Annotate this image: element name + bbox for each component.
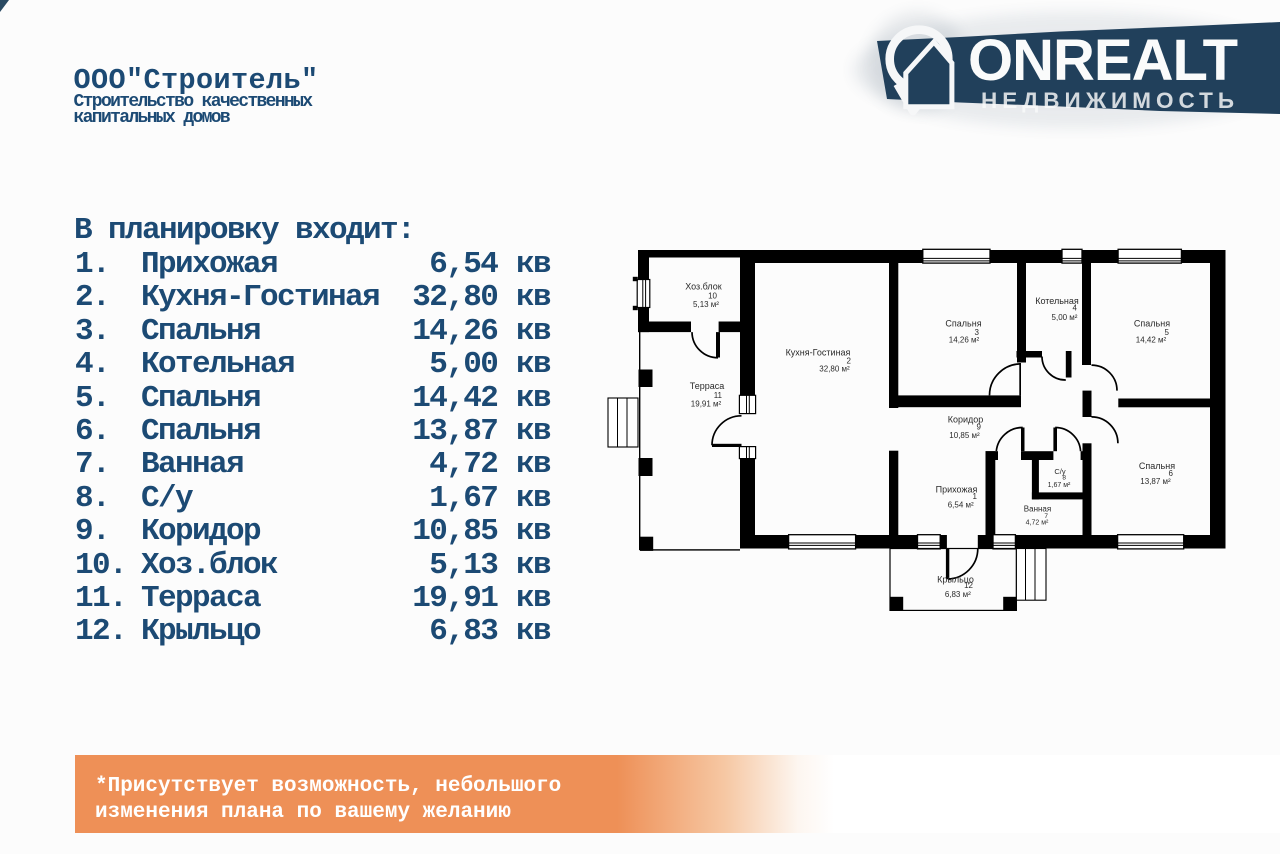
svg-text:Хоз.блок: Хоз.блок	[685, 282, 722, 292]
svg-text:32,80 м²: 32,80 м²	[819, 365, 850, 374]
svg-text:Спальня: Спальня	[1134, 319, 1170, 329]
svg-text:8: 8	[1062, 474, 1066, 481]
svg-text:НЕДВИЖИМОСТЬ: НЕДВИЖИМОСТЬ	[981, 88, 1239, 113]
svg-text:Прихожая: Прихожая	[936, 485, 978, 495]
svg-text:ONREALT: ONREALT	[968, 28, 1238, 93]
svg-text:Спальня: Спальня	[945, 319, 981, 329]
svg-text:5,00 м²: 5,00 м²	[1052, 313, 1078, 322]
svg-text:Терраса: Терраса	[690, 381, 725, 391]
svg-text:10,85 м²: 10,85 м²	[949, 431, 980, 440]
svg-text:4,72 м²: 4,72 м²	[1026, 519, 1049, 526]
svg-text:6,54 м²: 6,54 м²	[948, 501, 974, 510]
svg-text:4: 4	[1073, 304, 1078, 313]
svg-text:1,67 м²: 1,67 м²	[1048, 482, 1071, 489]
svg-text:5,13 м²: 5,13 м²	[693, 300, 719, 309]
svg-text:14,42 м²: 14,42 м²	[1136, 336, 1167, 345]
svg-text:6,83 м²: 6,83 м²	[945, 590, 971, 599]
svg-text:19,91 м²: 19,91 м²	[691, 400, 722, 409]
svg-text:14,26 м²: 14,26 м²	[949, 336, 980, 345]
svg-text:13,87 м²: 13,87 м²	[1140, 477, 1171, 486]
svg-text:12: 12	[964, 581, 973, 590]
svg-text:Кухня-Гостиная: Кухня-Гостиная	[786, 348, 851, 358]
